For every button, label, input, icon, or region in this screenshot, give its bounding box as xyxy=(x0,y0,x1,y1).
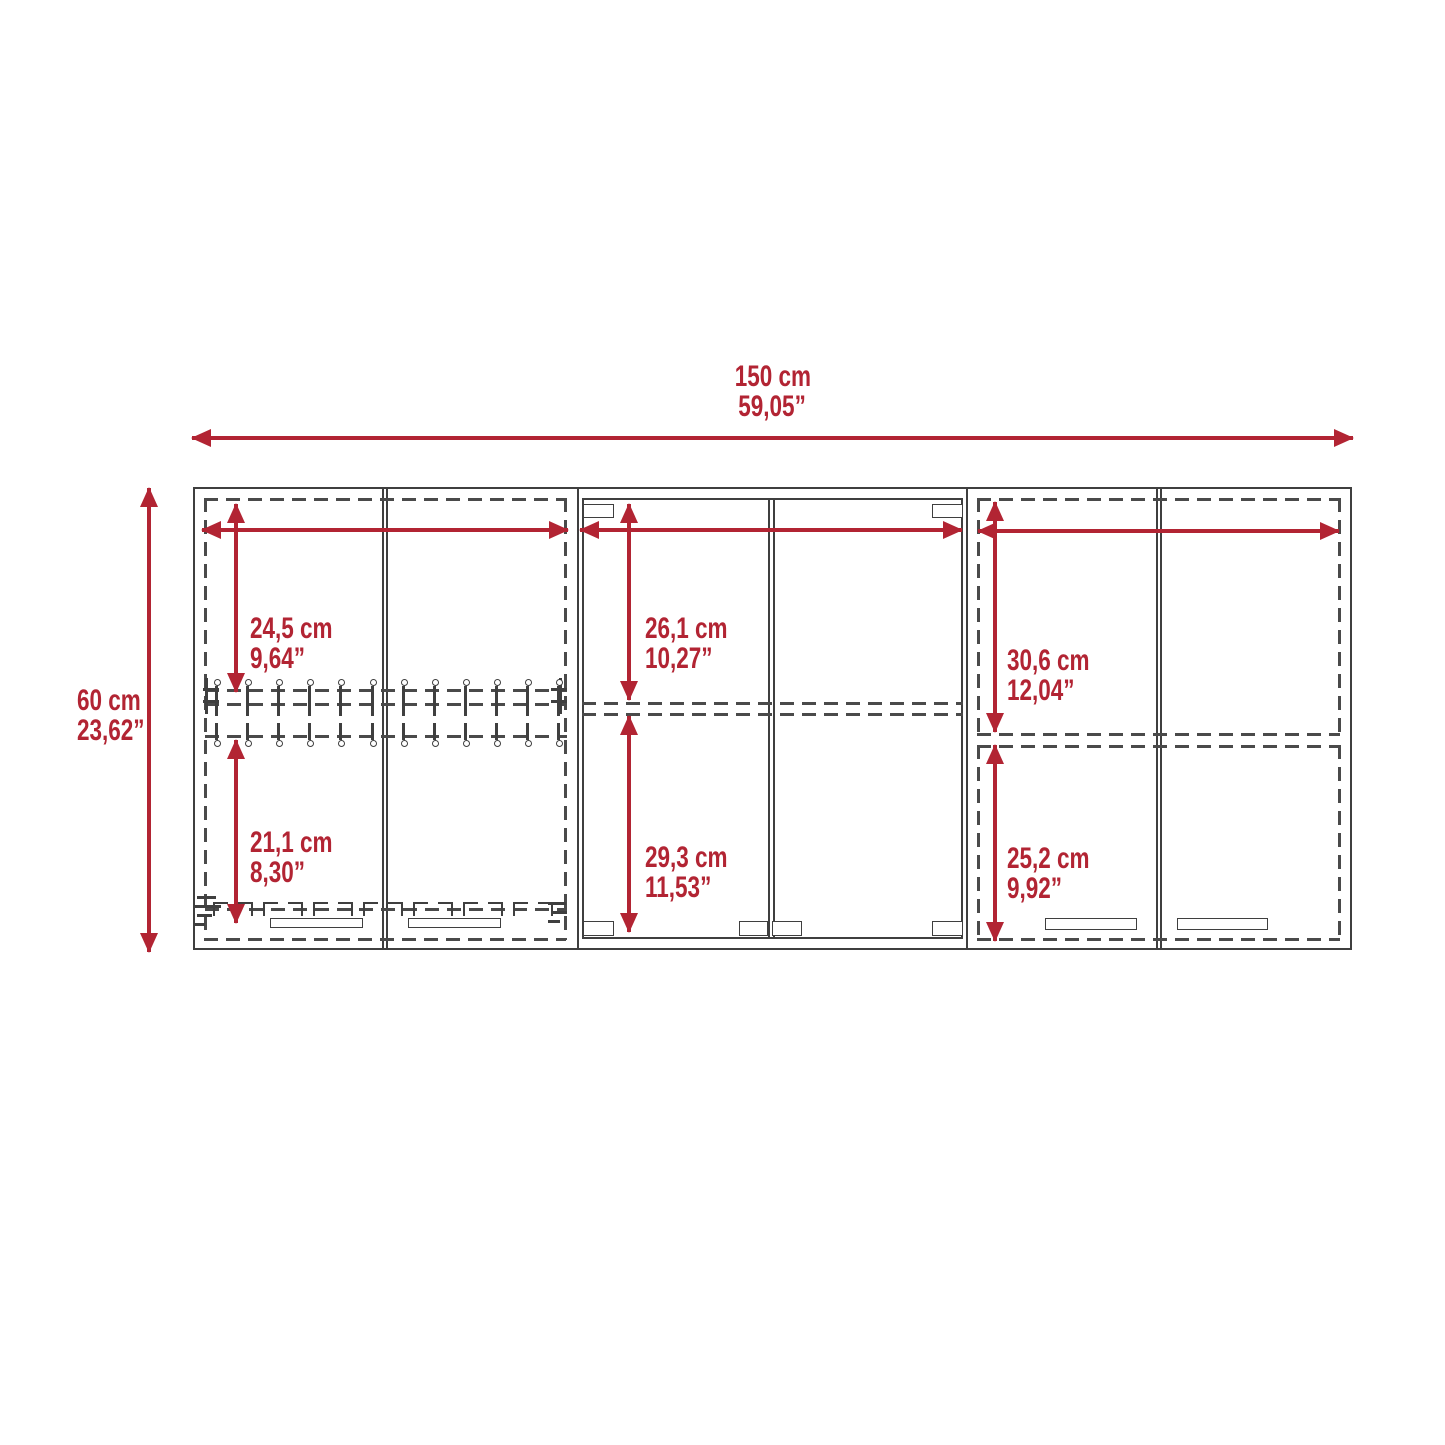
left-top-cm: 24,5 cm xyxy=(250,614,333,644)
rack-peg xyxy=(339,686,342,716)
rack-side-mount xyxy=(552,911,567,914)
hinge-plate xyxy=(583,504,614,518)
rack-peg xyxy=(433,686,436,716)
center-bottom-height-arrow xyxy=(627,716,631,932)
rack-peg xyxy=(215,723,218,740)
right-bottom-dash-bottom xyxy=(977,938,1340,941)
drip-tray xyxy=(408,918,501,928)
rack-end-bracket xyxy=(205,678,208,714)
right-top-cm: 30,6 cm xyxy=(1007,646,1090,676)
rack-peg xyxy=(308,723,311,740)
center-top-label: 26,1 cm 10,27” xyxy=(645,614,755,674)
center-top-inch: 10,27” xyxy=(645,644,713,674)
rack-bracket xyxy=(538,902,553,916)
hinge-plate xyxy=(583,921,614,936)
right-top-dash-bottom xyxy=(977,733,1340,736)
rack-peg xyxy=(246,723,249,740)
left-dash-right xyxy=(564,498,567,940)
rack-peg xyxy=(371,686,374,716)
rack-peg xyxy=(433,723,436,740)
rack-peg xyxy=(246,686,249,716)
rack-bracket xyxy=(463,902,478,916)
right-bottom-label: 25,2 cm 9,92” xyxy=(1007,844,1117,904)
right-top-dash-top xyxy=(977,498,1340,501)
rack-peg xyxy=(557,686,560,716)
rack-rail xyxy=(205,703,567,706)
right-top-height-arrow xyxy=(993,502,997,732)
right-top-inch: 12,04” xyxy=(1007,676,1075,706)
rack-peg xyxy=(277,686,280,716)
right-bottom-dash-right xyxy=(1338,745,1341,940)
rack-peg xyxy=(526,686,529,716)
hinge-plate xyxy=(739,921,768,936)
right-bottom-dash-left xyxy=(977,745,980,940)
left-bottom-inch: 8,30” xyxy=(250,858,305,888)
rack-peg xyxy=(402,723,405,740)
hinge-plate xyxy=(932,504,963,518)
overall-width-inch: 59,05” xyxy=(739,392,807,422)
left-section-width-arrow xyxy=(202,528,568,532)
rack-peg xyxy=(495,686,498,716)
rack-peg xyxy=(495,723,498,740)
rack-peg xyxy=(371,723,374,740)
rack-bracket xyxy=(488,902,503,916)
overall-height-cm: 60 cm xyxy=(77,686,141,716)
overall-height-label: 60 cm 23,62” xyxy=(77,686,167,746)
left-top-label: 24,5 cm 9,64” xyxy=(250,614,360,674)
center-shelf-dash xyxy=(582,713,963,716)
rack-bracket xyxy=(438,902,453,916)
rack-side-mount xyxy=(197,914,212,917)
right-bottom-cm: 25,2 cm xyxy=(1007,844,1090,874)
center-door-divider xyxy=(768,498,775,939)
left-dash-top xyxy=(204,498,566,501)
rack-side-mount xyxy=(548,920,560,923)
center-top-height-arrow xyxy=(627,504,631,700)
rack-rail xyxy=(205,689,567,692)
center-shelf-dash xyxy=(582,702,963,705)
hinge-plate xyxy=(772,921,802,936)
rack-peg xyxy=(464,686,467,716)
center-top-cm: 26,1 cm xyxy=(645,614,728,644)
rack-bracket xyxy=(363,902,378,916)
left-bottom-height-arrow xyxy=(234,740,238,923)
overall-height-arrow xyxy=(147,488,151,952)
left-top-height-arrow xyxy=(234,504,238,692)
center-section-width-arrow xyxy=(580,528,962,532)
rack-peg xyxy=(339,723,342,740)
rack-bracket xyxy=(513,902,528,916)
cabinet-dimension-diagram: 150 cm 59,05” 60 cm 23,62” xyxy=(0,0,1445,1445)
rack-bracket xyxy=(338,902,353,916)
overall-height-inch: 23,62” xyxy=(77,716,145,746)
rack-side-mount xyxy=(197,896,216,899)
door-handle-slot xyxy=(1045,918,1137,930)
rack-peg xyxy=(215,686,218,716)
rack-bracket xyxy=(313,902,328,916)
rack-bracket xyxy=(413,902,428,916)
rack-side-mount xyxy=(195,923,205,926)
left-dash-left xyxy=(204,498,207,940)
rack-peg xyxy=(526,723,529,740)
right-bottom-inch: 9,92” xyxy=(1007,874,1062,904)
drip-tray xyxy=(270,918,363,928)
left-bottom-cm: 21,1 cm xyxy=(250,828,333,858)
left-door-divider xyxy=(382,487,388,950)
rack-peg xyxy=(402,686,405,716)
right-section-width-arrow xyxy=(978,529,1339,533)
rack-peg xyxy=(557,723,560,740)
rack-peg xyxy=(308,686,311,716)
rack-peg xyxy=(464,723,467,740)
door-handle-slot xyxy=(1177,918,1268,930)
overall-width-cm: 150 cm xyxy=(734,362,810,392)
right-bottom-dash-top xyxy=(977,745,1340,748)
right-top-label: 30,6 cm 12,04” xyxy=(1007,646,1117,706)
left-bottom-label: 21,1 cm 8,30” xyxy=(250,828,360,888)
rack-bracket xyxy=(388,902,403,916)
overall-width-arrow xyxy=(192,436,1353,440)
right-door-divider xyxy=(1156,487,1162,950)
center-bottom-label: 29,3 cm 11,53” xyxy=(645,843,755,903)
hinge-plate xyxy=(932,921,963,936)
center-bottom-cm: 29,3 cm xyxy=(645,843,728,873)
rack-peg xyxy=(277,723,280,740)
center-bottom-inch: 11,53” xyxy=(645,873,711,903)
left-top-inch: 9,64” xyxy=(250,644,305,674)
rack-rail xyxy=(205,735,567,738)
left-dash-bottom xyxy=(204,938,566,941)
rack-bracket xyxy=(288,902,303,916)
overall-width-label: 150 cm 59,05” xyxy=(192,362,1353,422)
right-bottom-height-arrow xyxy=(993,745,997,941)
rack-bracket xyxy=(263,902,278,916)
rack-bracket xyxy=(213,902,228,916)
